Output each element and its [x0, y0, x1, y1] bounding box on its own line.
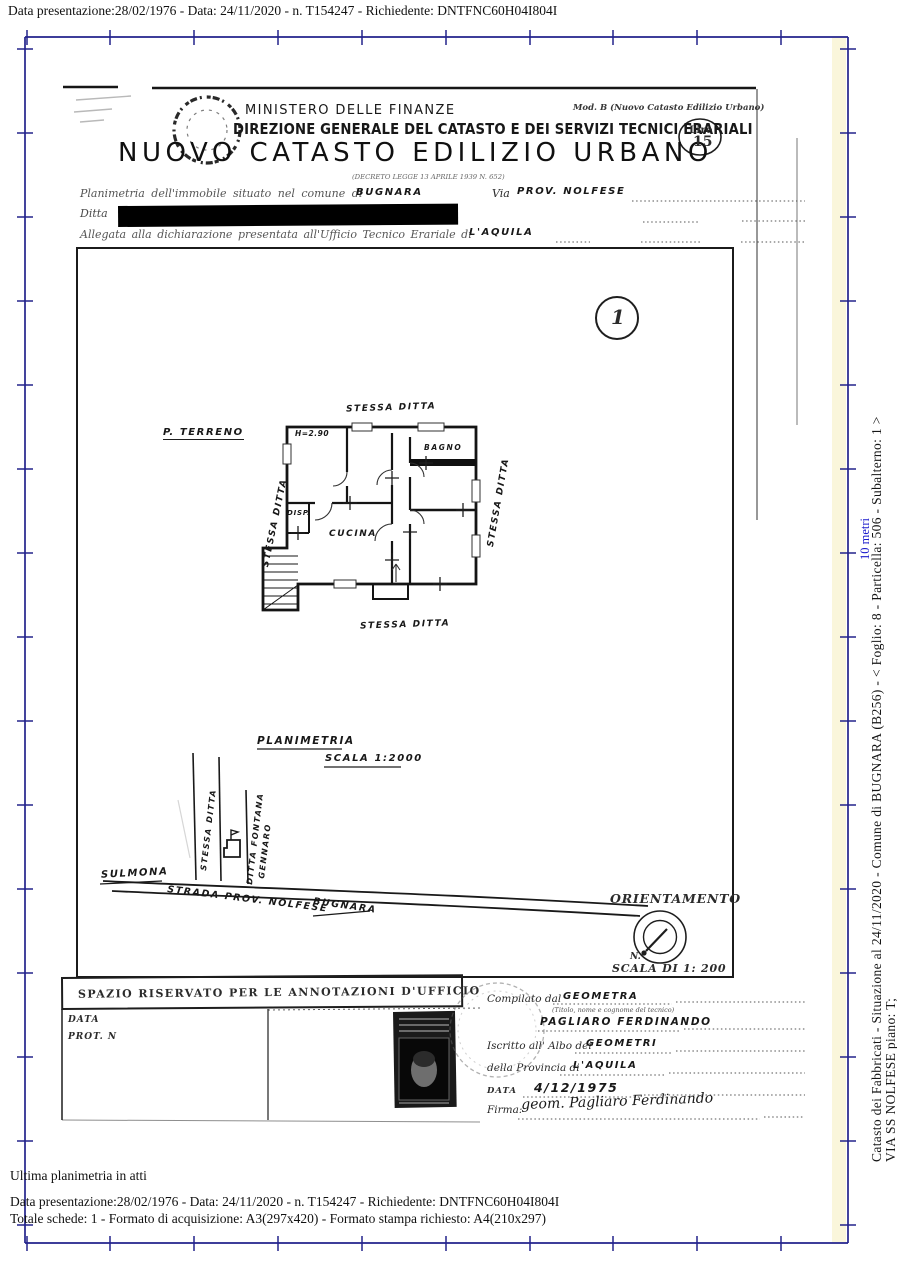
ruler-ticks: [17, 30, 856, 1251]
bottom-status-line: Ultima planimetria in atti: [10, 1168, 147, 1184]
cadastral-viewer-page: Data presentazione:28/02/1976 - Data: 24…: [0, 0, 897, 1261]
bottom-formats-line: Totale schede: 1 - Formato di acquisizio…: [10, 1211, 546, 1227]
frame-lines: [25, 37, 848, 1243]
address-line: VIA SS NOLFESE piano: T;: [883, 998, 897, 1162]
ruler-frame: [0, 0, 897, 1261]
bottom-info-line: Data presentazione:28/02/1976 - Data: 24…: [10, 1194, 559, 1210]
scale-10-metri-link[interactable]: 10 metri: [858, 518, 873, 560]
